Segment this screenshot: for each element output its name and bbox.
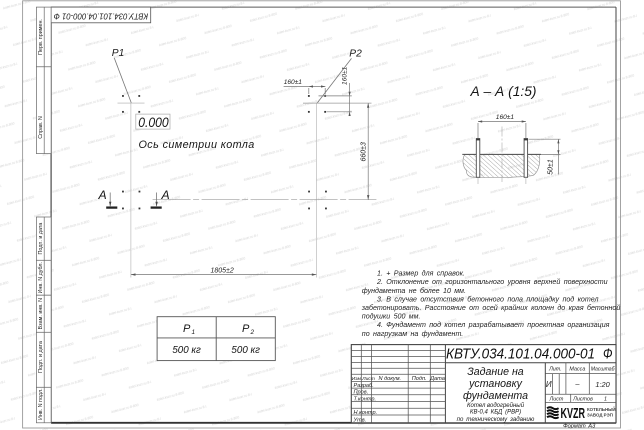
svg-text:Лит.: Лит. xyxy=(548,366,562,372)
svg-text:Ось симетрии котла: Ось симетрии котла xyxy=(139,139,255,151)
svg-text:по нагрузкам на фундамент.: по нагрузкам на фундамент. xyxy=(362,330,463,338)
svg-text:P: P xyxy=(242,323,250,335)
svg-text:Перв. примен.: Перв. примен. xyxy=(38,19,44,55)
svg-text:P1: P1 xyxy=(112,48,124,59)
svg-text:Т.контр.: Т.контр. xyxy=(354,396,377,402)
svg-text:Изм.Лист: Изм.Лист xyxy=(352,376,375,382)
svg-text:КВТУ.034.101.04.000-01: КВТУ.034.101.04.000-01 xyxy=(446,347,595,363)
svg-text:1: 1 xyxy=(604,397,607,403)
svg-text:Масса: Масса xyxy=(569,366,585,372)
svg-text:КОТЕЛЬНЫЙ: КОТЕЛЬНЫЙ xyxy=(587,407,616,412)
svg-text:1: 1 xyxy=(192,329,196,336)
svg-text:160±1: 160±1 xyxy=(284,79,303,86)
svg-text:4. Фундамент под котел разраба: 4. Фундамент под котел разрабатывает про… xyxy=(377,321,610,329)
svg-text:установку: установку xyxy=(468,378,522,390)
svg-text:Взам. инв. N: Взам. инв. N xyxy=(38,298,44,330)
svg-text:Масштаб: Масштаб xyxy=(591,366,616,372)
svg-text:Пров.: Пров. xyxy=(354,390,369,396)
svg-text:КВ-0,4 КБД (РВР): КВ-0,4 КБД (РВР) xyxy=(470,410,521,416)
svg-text:1. + Размер для справок.: 1. + Размер для справок. xyxy=(377,270,465,278)
svg-text:Утв.: Утв. xyxy=(353,417,367,423)
svg-text:Подп.: Подп. xyxy=(412,376,427,382)
svg-text:0.000: 0.000 xyxy=(138,115,169,130)
svg-text:P2: P2 xyxy=(349,49,362,60)
svg-text:160±1: 160±1 xyxy=(496,114,515,121)
svg-text:ЗАВОД РЭП: ЗАВОД РЭП xyxy=(587,413,613,418)
svg-text:50±1: 50±1 xyxy=(548,159,555,175)
svg-text:забетонировать. Расстояние от: забетонировать. Расстояние от осей крайн… xyxy=(361,304,621,312)
svg-text:Инв. N подл.: Инв. N подл. xyxy=(38,388,44,420)
svg-text:Лист: Лист xyxy=(549,397,564,403)
svg-text:660±3: 660±3 xyxy=(361,142,368,162)
svg-text:Ф: Ф xyxy=(603,347,613,363)
svg-text:Подп. и дата: Подп. и дата xyxy=(38,341,44,373)
svg-text:Подп. и дата: Подп. и дата xyxy=(38,223,44,255)
svg-text:И: И xyxy=(546,380,552,389)
svg-text:А: А xyxy=(98,188,107,202)
svg-text:Н.контр.: Н.контр. xyxy=(354,410,378,416)
svg-text:Формат А3: Формат А3 xyxy=(563,423,596,429)
svg-text:А: А xyxy=(161,188,170,202)
svg-text:2. Отклонение от горизонтально: 2. Отклонение от горизонтального уровня … xyxy=(376,278,608,286)
svg-text:Задание на: Задание на xyxy=(467,366,524,378)
svg-text:А – А (1:5): А – А (1:5) xyxy=(470,84,537,99)
svg-text:Инв. N дубл.: Инв. N дубл. xyxy=(38,262,44,294)
svg-text:1:20: 1:20 xyxy=(595,380,610,389)
svg-text:2: 2 xyxy=(250,329,255,336)
svg-text:P: P xyxy=(183,323,191,335)
svg-text:фундамента: фундамента xyxy=(463,390,528,402)
svg-text:Котел водогрейный: Котел водогрейный xyxy=(467,402,525,409)
svg-text:КВТУ.034.101.04.000-01 Ф: КВТУ.034.101.04.000-01 Ф xyxy=(54,11,148,20)
svg-text:Дата: Дата xyxy=(429,376,445,382)
svg-text:по техническому заданию: по техническому заданию xyxy=(457,416,535,423)
svg-text:3. В случае отсутствия бетонно: 3. В случае отсутствия бетонного пола пл… xyxy=(377,295,599,303)
svg-text:Справ. N: Справ. N xyxy=(38,116,44,139)
svg-text:фундамента не более 10 мм.: фундамента не более 10 мм. xyxy=(362,287,466,295)
svg-text:KVZR: KVZR xyxy=(561,405,586,422)
svg-text:–: – xyxy=(574,379,580,388)
svg-text:500 кг: 500 кг xyxy=(231,345,260,356)
svg-text:1805±2: 1805±2 xyxy=(211,268,234,275)
svg-text:подушки 500 мм.: подушки 500 мм. xyxy=(362,313,421,321)
svg-text:Листов: Листов xyxy=(572,397,593,403)
svg-text:N докум.: N докум. xyxy=(378,376,401,382)
svg-text:500 кг: 500 кг xyxy=(172,345,201,356)
svg-text:Разраб.: Разраб. xyxy=(354,383,374,389)
svg-text:160±1: 160±1 xyxy=(341,66,348,85)
